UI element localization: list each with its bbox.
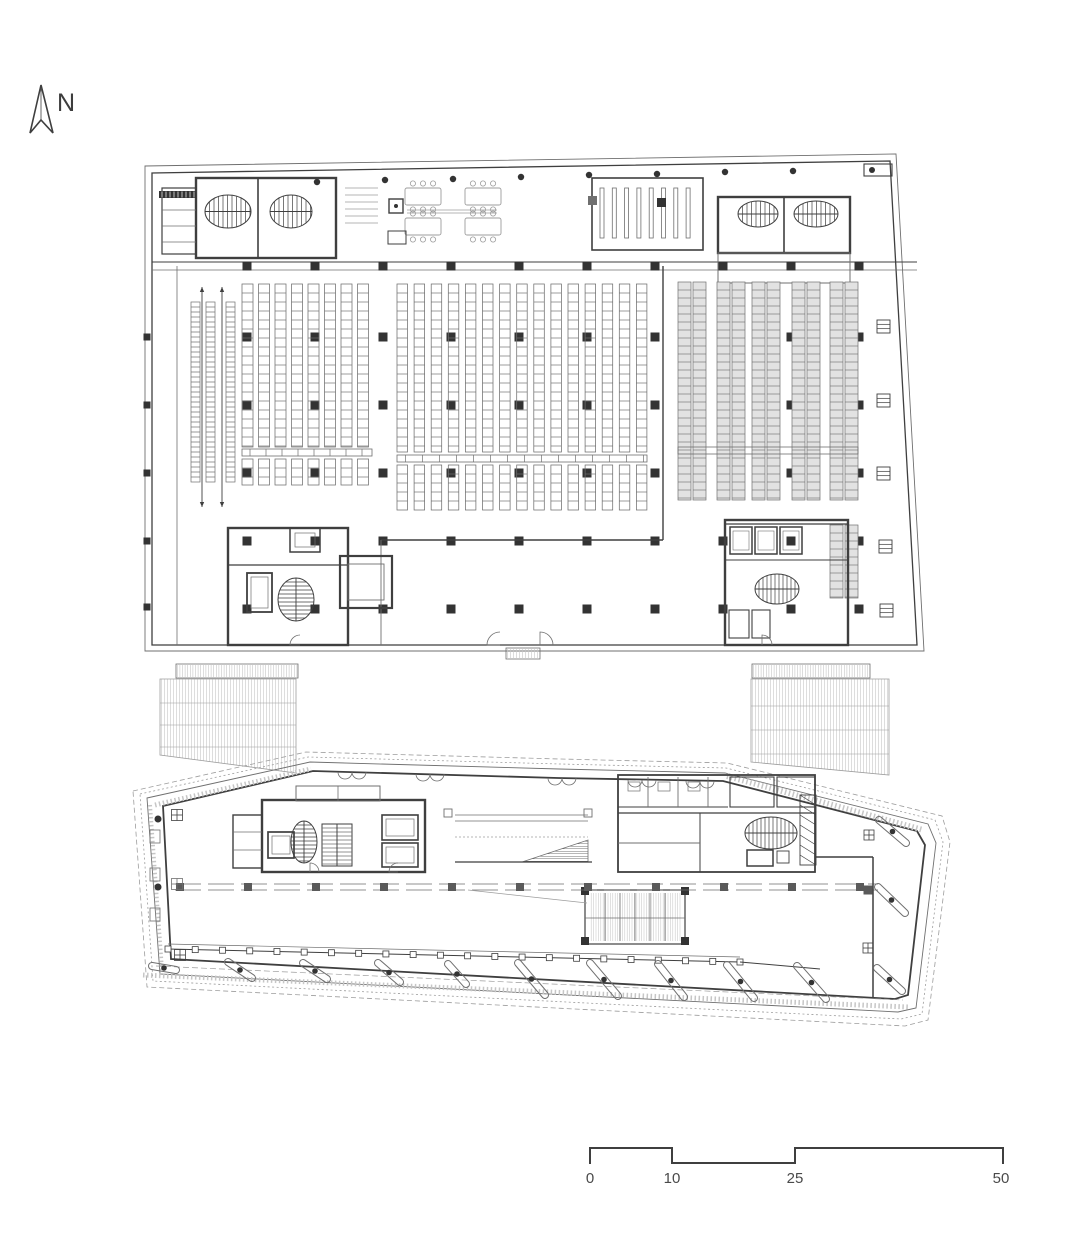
floor-plan-page: N 0 10 25 50	[0, 0, 1080, 1245]
north-indicator: N	[57, 89, 75, 117]
floor-plan-drawing: N 0 10 25 50	[0, 0, 1080, 1245]
north-label: N	[57, 89, 75, 117]
scale-label-50: 50	[993, 1170, 1010, 1187]
scale-label-10: 10	[664, 1170, 681, 1187]
plan-linework	[30, 85, 1003, 1164]
scale-label-25: 25	[787, 1170, 804, 1187]
scale-label-0: 0	[586, 1170, 594, 1187]
scale-bar: 0 10 25 50	[586, 1170, 1010, 1187]
